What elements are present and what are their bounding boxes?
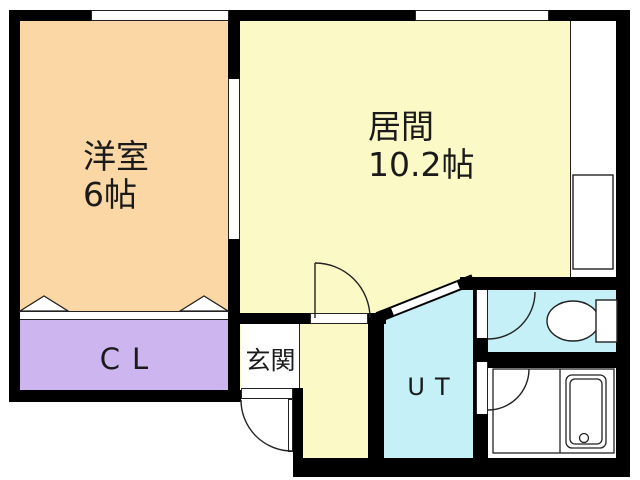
toilet-icon — [547, 300, 617, 342]
label-living-room: 居間10.2帖 — [368, 108, 474, 184]
toilet-door-arc — [488, 292, 535, 339]
living-room-name: 居間 — [368, 107, 434, 146]
western-room-size: 6帖 — [83, 175, 137, 214]
fixtures-overlay — [0, 0, 640, 480]
label-western-room: 洋室6帖 — [83, 138, 149, 214]
bathroom-door-arc — [488, 369, 529, 410]
living-room-size: 10.2帖 — [368, 145, 474, 184]
floor-plan: 洋室6帖 居間10.2帖 CL 玄関 UT — [0, 0, 640, 480]
living-door-arc — [315, 263, 370, 318]
side-fixture — [573, 175, 613, 269]
bath-unit — [493, 369, 614, 453]
western-room-name: 洋室 — [83, 137, 149, 176]
label-closet: CL — [20, 343, 228, 376]
bathtub-drain — [580, 434, 589, 443]
entrance-door-arc — [241, 400, 292, 451]
label-utility: UT — [384, 374, 473, 402]
closet-folding-door-icon — [20, 296, 228, 311]
label-entrance: 玄関 — [241, 347, 300, 376]
